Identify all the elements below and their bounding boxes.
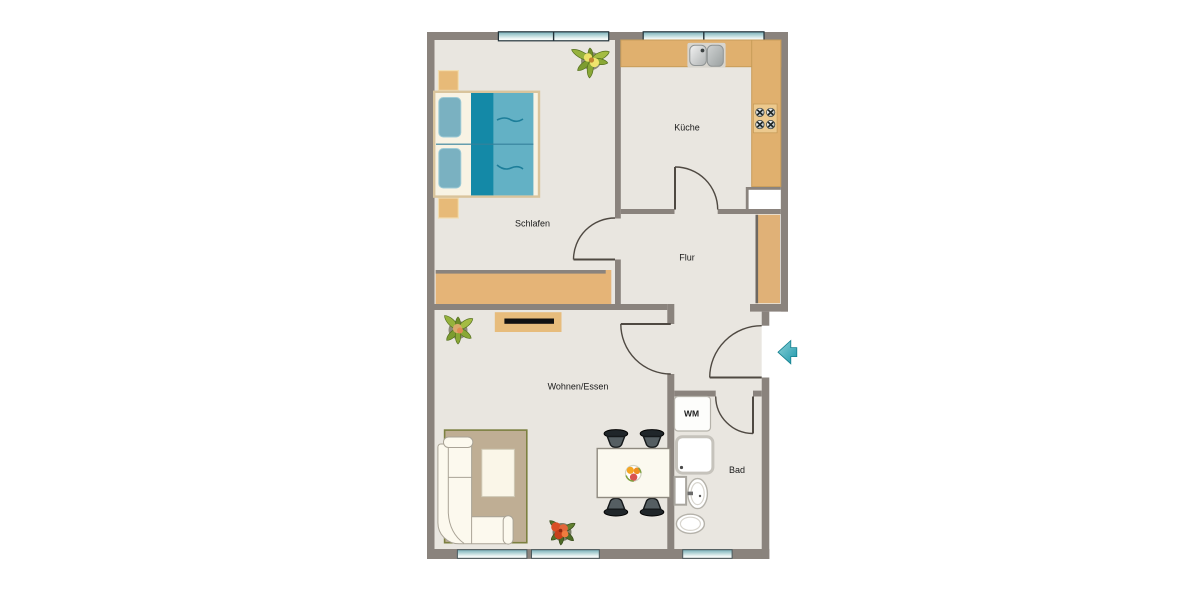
svg-text:Flur: Flur xyxy=(679,252,695,262)
svg-text:Schlafen: Schlafen xyxy=(515,219,550,229)
svg-text:Küche: Küche xyxy=(674,122,700,132)
svg-text:Bad: Bad xyxy=(729,465,745,475)
svg-text:Wohnen/Essen: Wohnen/Essen xyxy=(548,381,609,391)
svg-text:WM: WM xyxy=(684,408,699,418)
